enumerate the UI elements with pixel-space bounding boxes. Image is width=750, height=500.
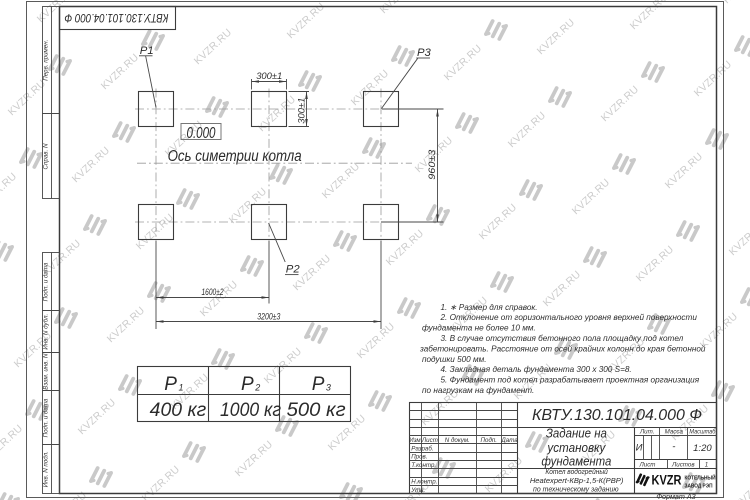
svg-text:960±3: 960±3 xyxy=(426,149,437,180)
svg-text:Изм.: Изм. xyxy=(409,437,422,444)
svg-text:И: И xyxy=(636,442,643,453)
svg-text:3200±3: 3200±3 xyxy=(257,310,281,321)
svg-text:KVZR.RU: KVZR.RU xyxy=(134,212,176,252)
svg-text:KVZR.RU: KVZR.RU xyxy=(727,218,750,258)
svg-text:Разраб.: Разраб. xyxy=(411,445,433,452)
svg-text:по техническому заданию: по техническому заданию xyxy=(533,486,619,494)
svg-text:KVZR.RU: KVZR.RU xyxy=(47,490,89,500)
svg-text:KVZR: KVZR xyxy=(652,472,682,487)
svg-text:P3: P3 xyxy=(417,47,432,59)
svg-text:Н.контр.: Н.контр. xyxy=(411,479,437,486)
svg-text:KVZR.RU: KVZR.RU xyxy=(0,171,19,211)
svg-text:KVZR.RU: KVZR.RU xyxy=(733,471,750,500)
svg-text:Т.контр.: Т.контр. xyxy=(411,462,436,469)
svg-text:KVZR.RU: KVZR.RU xyxy=(721,0,750,6)
svg-text:KVZR.RU: KVZR.RU xyxy=(320,161,362,201)
svg-text:KVZR.RU: KVZR.RU xyxy=(70,145,112,185)
svg-text:KVZR.RU: KVZR.RU xyxy=(384,228,426,268)
svg-text:-: - xyxy=(672,441,675,452)
svg-text:KVZR.RU: KVZR.RU xyxy=(663,151,705,191)
svg-text:KVZR.RU: KVZR.RU xyxy=(692,59,734,99)
svg-text:0.000: 0.000 xyxy=(187,125,216,142)
svg-text:Котел водогрейный: Котел водогрейный xyxy=(545,468,608,476)
svg-text:KVZR.RU: KVZR.RU xyxy=(99,52,141,92)
svg-text:фундамента: фундамента xyxy=(541,453,611,468)
svg-text:KVZR.RU: KVZR.RU xyxy=(442,43,484,83)
svg-text:2. Отклонение от горизонтально: 2. Отклонение от горизонтального уровня … xyxy=(440,313,698,322)
svg-text:KVZR.RU: KVZR.RU xyxy=(628,0,670,32)
svg-text:KVZR.RU: KVZR.RU xyxy=(506,110,548,150)
svg-text:Ось симетрии котла: Ось симетрии котла xyxy=(168,148,302,165)
svg-text:Подп.: Подп. xyxy=(481,437,497,444)
svg-text:KVZR.RU: KVZR.RU xyxy=(378,0,420,16)
svg-text:Лист: Лист xyxy=(639,461,656,468)
svg-text:Heatexpert-КВр-1,5-К(РВР): Heatexpert-КВр-1,5-К(РВР) xyxy=(530,478,624,485)
svg-text:КВТУ.130.101.04.000 Ф: КВТУ.130.101.04.000 Ф xyxy=(64,11,168,25)
svg-text:Подп. и дата: Подп. и дата xyxy=(43,262,50,301)
svg-text:KVZR.RU: KVZR.RU xyxy=(256,94,298,134)
svg-text:Подп. и дата: Подп. и дата xyxy=(43,398,50,437)
svg-text:KVZR.RU: KVZR.RU xyxy=(105,305,147,345)
svg-text:KVZR.RU: KVZR.RU xyxy=(570,177,612,217)
svg-text:Лист: Лист xyxy=(421,437,438,444)
svg-text:5. Фундамент под котел разраба: 5. Фундамент под котел разрабатывает про… xyxy=(441,376,700,385)
svg-text:ЗАВОД РЭП: ЗАВОД РЭП xyxy=(685,483,713,489)
svg-text:P1: P1 xyxy=(140,45,154,57)
svg-text:KVZR.RU: KVZR.RU xyxy=(0,423,25,463)
svg-text:по нагрузкам на фундамент.: по нагрузкам на фундамент. xyxy=(422,386,534,395)
svg-text:P2: P2 xyxy=(286,264,301,276)
svg-text:KVZR.RU: KVZR.RU xyxy=(535,17,577,57)
svg-text:KVZR.RU: KVZR.RU xyxy=(483,455,525,495)
svg-text:KVZR.RU: KVZR.RU xyxy=(6,78,48,118)
svg-text:N докум.: N докум. xyxy=(445,437,470,444)
svg-text:КВТУ.130.101.04.000 Ф: КВТУ.130.101.04.000 Ф xyxy=(532,407,702,424)
svg-text:Пров.: Пров. xyxy=(411,454,427,461)
svg-text:1000 кг: 1000 кг xyxy=(220,400,281,421)
svg-text:300±1: 300±1 xyxy=(256,70,282,81)
svg-text:1. ∗ Размер для справок.: 1. ∗ Размер для справок. xyxy=(441,303,538,312)
svg-text:Масштаб: Масштаб xyxy=(689,428,715,435)
svg-text:Дата: Дата xyxy=(500,437,518,444)
svg-text:KVZR.RU: KVZR.RU xyxy=(477,202,519,242)
svg-text:P1: P1 xyxy=(164,374,183,395)
svg-text:KVZR.RU: KVZR.RU xyxy=(140,464,182,500)
svg-text:P3: P3 xyxy=(312,374,331,395)
svg-text:Инв. N дубл.: Инв. N дубл. xyxy=(43,314,50,350)
svg-text:Листов: Листов xyxy=(671,461,695,468)
svg-text:Лит.: Лит. xyxy=(639,428,655,435)
svg-text:3. В случае отсутствия бетонно: 3. В случае отсутствия бетонного пола пл… xyxy=(441,334,684,343)
svg-text:300±1: 300±1 xyxy=(296,98,307,124)
svg-text:Масса: Масса xyxy=(665,428,684,435)
svg-text:Справ. N: Справ. N xyxy=(43,143,50,169)
svg-text:Перв. примен.: Перв. примен. xyxy=(43,40,50,81)
svg-text:Задание на: Задание на xyxy=(546,426,607,441)
svg-text:1: 1 xyxy=(705,461,708,468)
svg-text:Инв. N подл.: Инв. N подл. xyxy=(43,451,50,487)
svg-text:Формат А3: Формат А3 xyxy=(656,492,695,500)
svg-text:KVZR.RU: KVZR.RU xyxy=(349,68,391,108)
svg-text:KVZR.RU: KVZR.RU xyxy=(227,186,269,226)
svg-text:P2: P2 xyxy=(241,374,260,395)
svg-text:KVZR.RU: KVZR.RU xyxy=(541,269,583,309)
svg-text:1:20: 1:20 xyxy=(693,443,712,454)
svg-text:500 кг: 500 кг xyxy=(287,400,346,421)
svg-text:KVZR.RU: KVZR.RU xyxy=(634,244,676,284)
svg-text:KVZR.RU: KVZR.RU xyxy=(355,321,397,361)
svg-text:4. Закладная деталь фундамента: 4. Закладная деталь фундамента 300 x 300… xyxy=(441,365,632,374)
svg-text:Взам. инв. N: Взам. инв. N xyxy=(43,353,50,390)
svg-text:KVZR.RU: KVZR.RU xyxy=(76,397,118,437)
svg-text:подушки 500 мм.: подушки 500 мм. xyxy=(422,355,487,364)
svg-text:КОТЕЛЬНЫЙ: КОТЕЛЬНЫЙ xyxy=(685,473,716,481)
svg-text:забетонировать. Расстояние от: забетонировать. Расстояние от осей крайн… xyxy=(419,344,706,353)
svg-text:1600±2: 1600±2 xyxy=(202,286,225,297)
svg-text:KVZR.RU: KVZR.RU xyxy=(233,439,275,479)
svg-text:Утв.: Утв. xyxy=(410,487,425,494)
svg-text:KVZR.RU: KVZR.RU xyxy=(599,84,641,124)
svg-text:фундамента не более 10 мм.: фундамента не более 10 мм. xyxy=(422,324,536,333)
svg-text:400 кг: 400 кг xyxy=(150,400,207,421)
svg-text:KVZR.RU: KVZR.RU xyxy=(192,27,234,67)
